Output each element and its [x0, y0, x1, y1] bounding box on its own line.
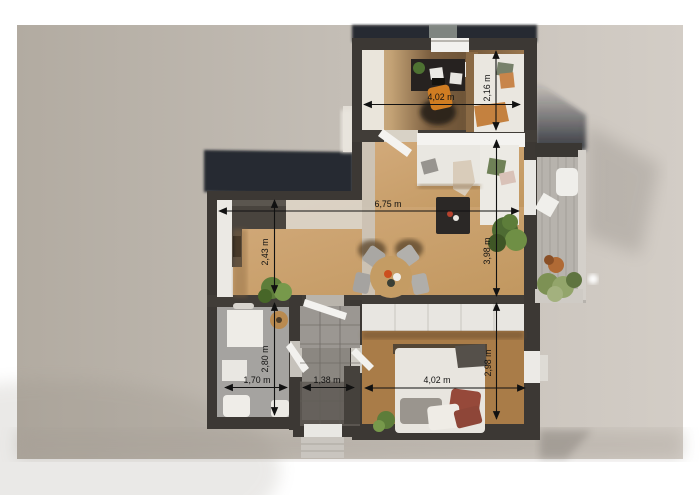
svg-text:2,80 m: 2,80 m: [260, 346, 270, 373]
svg-text:1,70 m: 1,70 m: [244, 375, 271, 385]
svg-text:2,16 m: 2,16 m: [482, 75, 492, 102]
svg-text:2,98 m: 2,98 m: [483, 350, 493, 377]
svg-text:1,38 m: 1,38 m: [314, 375, 341, 385]
svg-text:6,75 m: 6,75 m: [375, 199, 402, 209]
svg-text:4,02 m: 4,02 m: [424, 375, 451, 385]
svg-text:4,02 m: 4,02 m: [428, 92, 455, 102]
svg-text:3,98 m: 3,98 m: [482, 238, 492, 265]
svg-text:2,43 m: 2,43 m: [260, 239, 270, 266]
